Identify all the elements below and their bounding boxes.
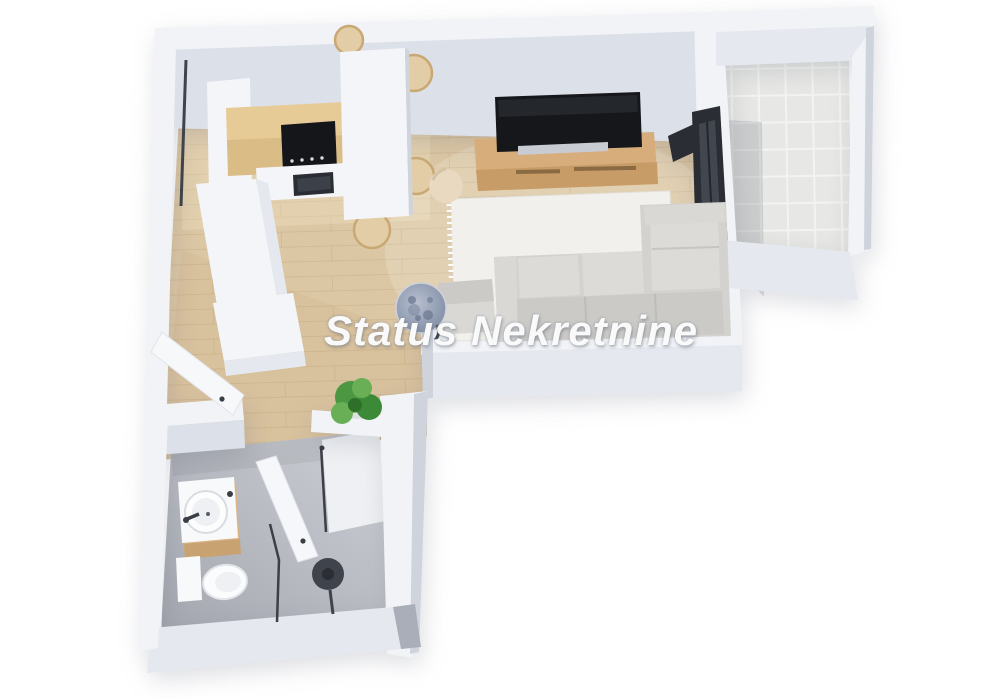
glass-hinge bbox=[320, 446, 325, 451]
page-background: Status Nekretnine bbox=[0, 0, 1000, 698]
dining-table bbox=[340, 48, 409, 220]
vanity bbox=[178, 477, 241, 559]
balcony-north-wall-face bbox=[716, 26, 870, 66]
armchair-cushion bbox=[438, 279, 494, 305]
entry-door-handle bbox=[219, 396, 224, 401]
living-south-wall-cap bbox=[421, 330, 433, 399]
washbasin-drain bbox=[206, 512, 210, 516]
soap-dispenser bbox=[227, 491, 233, 497]
washbasin-bowl bbox=[192, 498, 220, 526]
faucet-base bbox=[183, 517, 189, 523]
toilet-tank bbox=[176, 556, 202, 602]
wardrobe-bench bbox=[213, 293, 304, 361]
console-drawer bbox=[516, 169, 560, 174]
floor-plan-rendering bbox=[0, 0, 1000, 698]
bathroom-door-handle bbox=[300, 538, 305, 543]
shower-enclosure-top bbox=[322, 430, 385, 533]
shower-head-center bbox=[322, 568, 334, 580]
pouf bbox=[429, 169, 463, 203]
dining-chair bbox=[335, 26, 363, 54]
living-south-wall-front bbox=[423, 345, 742, 399]
